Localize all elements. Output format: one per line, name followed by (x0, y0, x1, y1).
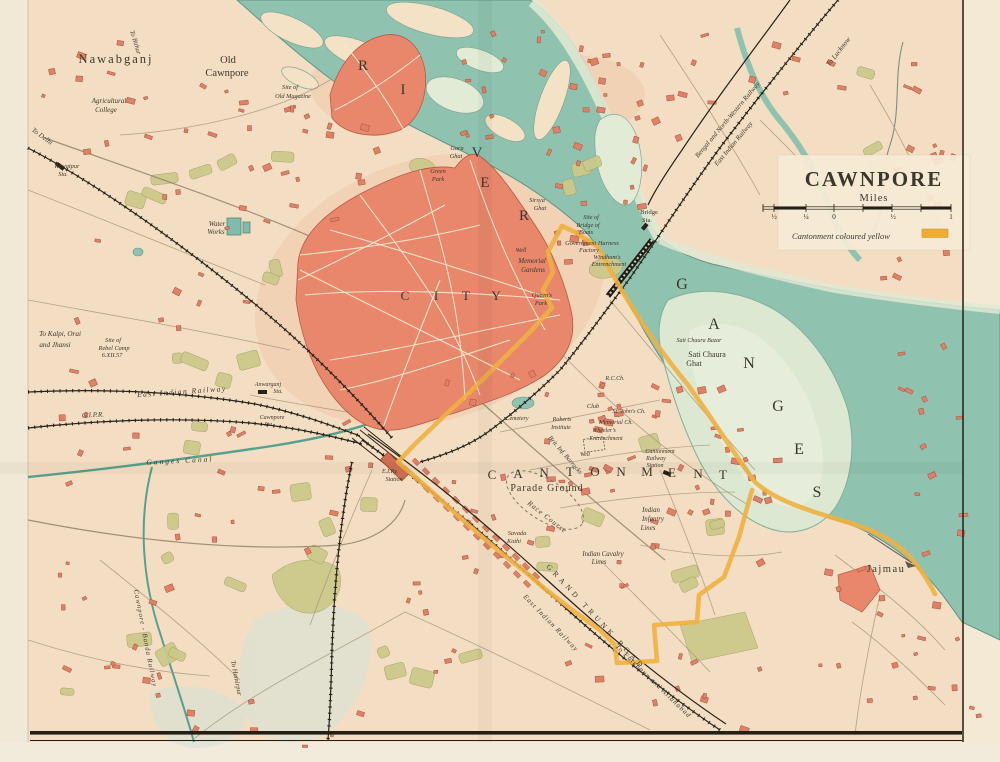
legend-text: Cantonment coloured yellow (792, 231, 890, 241)
label-st-johns-church: St. John's Ch. (613, 409, 646, 415)
label-rawatpur-sta-1: Rawatpur (54, 163, 80, 170)
legend-swatch (922, 229, 948, 238)
label-memorial-gardens-2: Gardens (521, 266, 545, 274)
label-bridge-sta-1: Bridge (640, 209, 658, 216)
label-river-letter-r1: R (358, 58, 368, 74)
label-green-park-2: Park (431, 176, 444, 183)
label-windhams-1: Windham's (593, 254, 621, 261)
label-river-letter-i: I (401, 82, 406, 98)
label-sati-chaura-bazar: Sati Chaura Bazar (676, 338, 722, 344)
label-eir-station-1: E.I.Ry. (381, 469, 398, 475)
label-site-of-magazine-1: Site of (282, 84, 299, 91)
cawnpore-map: CAWNPOREMilesCantonment coloured yellow … (0, 0, 1000, 762)
label-ganges-letter-s: S (813, 484, 822, 501)
label-anwarganj-sta-1: Anwarganj (254, 382, 282, 388)
label-cant-letter-3: N (539, 465, 549, 480)
label-jajmau: Jajmau (867, 564, 906, 575)
label-site-of-magazine-2: Old Magazine (275, 93, 311, 100)
label-ganges-letter-n: N (743, 355, 755, 372)
label-indian-cavalry-2: Lines (591, 559, 607, 566)
label-agricultural-college-2: College (95, 106, 117, 114)
map-sheet: CAWNPOREMilesCantonment coloured yellow … (0, 0, 1000, 762)
label-harness-factory-2: Factory (578, 247, 599, 254)
label-wheelers-1: Wheeler's (592, 428, 616, 434)
label-city-letter-t: T (462, 288, 470, 303)
label-cant-letter-1: C (488, 467, 497, 482)
label-rebel-camp-2: Rebel Camp (98, 345, 130, 352)
label-rc-church: R.C.Ch. (604, 376, 624, 382)
label-ganges-letter-a: A (708, 316, 720, 333)
label-cawnpore-sta-1: Cawnpore (260, 415, 285, 421)
label-agricultural-college-1: Agricultural (91, 97, 127, 105)
label-to-kalpi-1: To Kalpi, Orai (39, 330, 81, 338)
label-to-kalpi-2: and Jhansi (39, 341, 70, 349)
label-savada-kothi-1: Savada (508, 530, 527, 537)
label-cantonment-rly-sta-3: Station (646, 463, 663, 469)
label-green-park-1: Green (430, 168, 446, 175)
label-bridge-sta-2: Sta. (642, 217, 652, 224)
label-rawatpur-sta-2: Sta. (58, 171, 68, 178)
label-indian-infantry-1: Indian (641, 507, 660, 514)
title-block: CAWNPOREMilesCantonment coloured yellow … (763, 155, 970, 250)
label-parade-ground: Parade Ground (510, 483, 583, 494)
label-memorial-gardens-1: Memorial (517, 257, 546, 265)
label-sirsya-ghat-2: Ghat (534, 205, 547, 212)
label-bridge-of-boats-3: Boats (579, 229, 594, 236)
label-ganges-letter-g1: G (676, 276, 688, 293)
label-nawabganj: Nawabganj (79, 52, 154, 66)
label-sati-chaura-ghat-1: Sati Chaura (688, 350, 726, 359)
label-cantonment-rly-sta-1: Cantonment (645, 449, 675, 455)
label-anwarganj-sta-2: Sta. (273, 389, 282, 395)
label-city-letter-i: I (434, 288, 438, 303)
label-water-works-2: Works (207, 228, 225, 236)
label-rebel-camp-3: 6.XII.57 (102, 352, 123, 359)
label-sati-chaura-ghat-2: Ghat (686, 359, 702, 368)
label-memorial-church: Memorial Ch. (598, 420, 633, 426)
label-eir-station-2: Station (385, 477, 402, 483)
label-indian-infantry-2: Infantry (641, 516, 665, 523)
label-gora-ghat-1: Gora (450, 145, 463, 152)
anwarganj-station-marker (258, 390, 267, 394)
label-river-letter-e: E (480, 175, 489, 191)
label-cant-letter-5: O (590, 464, 599, 479)
label-queens-park-1: Queen's (532, 292, 553, 299)
label-indian-cavalry-1: Indian Cavalry (581, 551, 624, 558)
label-cantonment-rly-sta-2: Railway (645, 456, 666, 462)
map-title: CAWNPORE (805, 167, 944, 191)
label-city-letter-c: C (401, 288, 410, 303)
label-old-cawnpore-2: Cawnpore (205, 68, 248, 79)
label-sirsya-ghat-1: Sirsya (529, 197, 545, 204)
scale-tick-0: ½ (771, 212, 777, 221)
label-gora-ghat-2: Ghat (450, 153, 463, 160)
label-cant-letter-8: E (668, 465, 676, 480)
label-club: Club (587, 403, 599, 410)
label-savada-kothi-2: Kothi (506, 538, 521, 545)
label-queens-park-2: Park (534, 300, 547, 307)
label-cawnpore-sta-2: Sta. (264, 422, 273, 428)
scale-tick-4: 1 (949, 212, 953, 221)
label-ganges-letter-g2: G (772, 398, 784, 415)
label-rebel-camp-1: Site of (105, 337, 122, 344)
label-river-letter-v: V (472, 145, 483, 161)
label-old-cawnpore-1: Old (220, 55, 237, 66)
label-city-letter-y: Y (491, 288, 501, 303)
scale-tick-3: ½ (890, 212, 896, 221)
label-bridge-of-boats-1: Site of (583, 214, 600, 221)
label-river-letter-r2: R (519, 208, 529, 224)
label-harness-factory-1: Government Harness (565, 240, 619, 247)
label-cant-letter-9: N (693, 466, 703, 481)
label-cant-letter-10: T (719, 467, 727, 482)
label-ganges-letter-e: E (794, 441, 804, 458)
label-indian-infantry-3: Lines (640, 525, 656, 532)
label-roberts-institute-2: Institute (550, 425, 571, 431)
label-well-cantonment: Well (580, 452, 590, 458)
label-gipr: G.I.P.R. (82, 410, 105, 419)
label-wheelers-2: Entrenchment (588, 436, 623, 442)
scale-tick-1: ¼ (803, 212, 809, 221)
label-water-works-1: Water (209, 220, 226, 228)
label-roberts-institute-1: Roberts (552, 417, 572, 423)
label-memorial-well: Well (516, 247, 527, 254)
label-cant-letter-6: N (616, 464, 626, 479)
label-windhams-2: Entrenchment (591, 261, 627, 268)
map-title-units: Miles (860, 193, 889, 204)
label-bridge-of-boats-2: Bridge of (576, 222, 600, 229)
label-cemetery: Cemetery (506, 416, 529, 422)
label-cant-letter-2: A (513, 466, 523, 481)
scale-tick-2: 0 (832, 212, 836, 221)
